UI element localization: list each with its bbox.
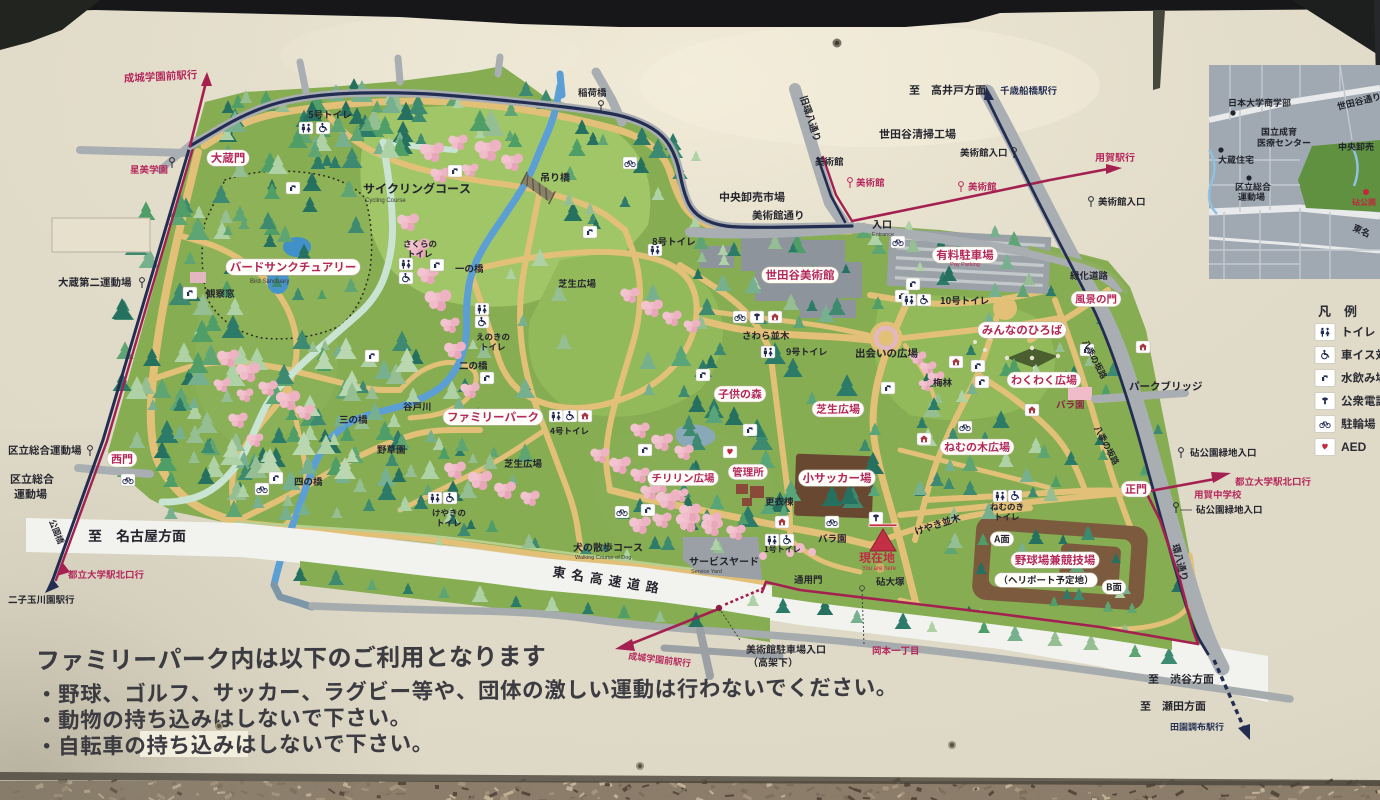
svg-text:Service Yard: Service Yard: [691, 569, 722, 575]
svg-text:Entrance: Entrance: [872, 232, 894, 238]
svg-text:You are here: You are here: [862, 566, 897, 572]
svg-text:Bird Sanctuary: Bird Sanctuary: [250, 279, 289, 285]
svg-text:AED: AED: [1341, 440, 1367, 454]
svg-text:Pay Parking: Pay Parking: [950, 262, 980, 268]
svg-text:Walking Course of Dog: Walking Course of Dog: [575, 555, 631, 561]
svg-text:Cycling Course: Cycling Course: [365, 198, 406, 204]
